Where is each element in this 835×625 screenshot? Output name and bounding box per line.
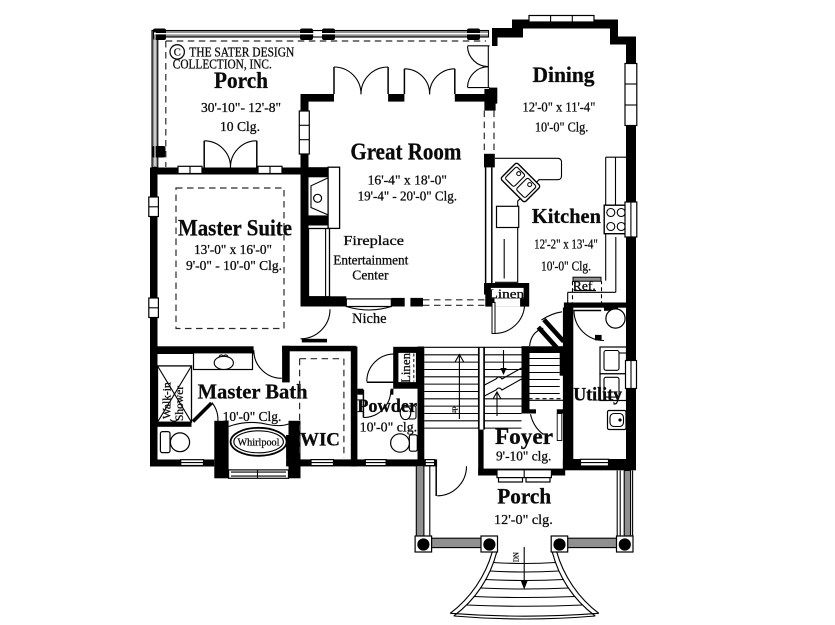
svg-text:Utility: Utility [573,386,623,406]
svg-text:9'-10" clg.: 9'-10" clg. [496,449,551,464]
svg-text:Shower: Shower [174,386,186,421]
svg-text:12'-2" x 13'-4": 12'-2" x 13'-4" [534,236,598,251]
svg-text:19'-4" - 20'-0" Clg.: 19'-4" - 20'-0" Clg. [358,189,457,204]
svg-text:12'-0" clg.: 12'-0" clg. [494,513,553,528]
svg-text:Powder: Powder [357,396,418,417]
svg-text:WIC: WIC [300,430,340,451]
svg-text:up: up [449,406,458,414]
svg-text:Niche: Niche [352,311,387,327]
svg-text:Kitchen: Kitchen [532,204,601,228]
svg-text:Master Suite: Master Suite [178,215,292,240]
svg-text:10 Clg.: 10 Clg. [220,119,260,134]
svg-text:Master Bath: Master Bath [198,379,308,403]
svg-text:10'-0" clg.: 10'-0" clg. [360,420,418,435]
svg-text:12'-0" x 11'-4": 12'-0" x 11'-4" [522,100,595,115]
svg-text:Linen: Linen [398,353,413,383]
svg-text:16'-4" x 18'-0": 16'-4" x 18'-0" [368,172,447,187]
svg-text:Great Room: Great Room [350,139,461,165]
svg-text:Fireplace: Fireplace [343,234,404,249]
svg-text:30'-10"- 12'-8": 30'-10"- 12'-8" [201,100,281,115]
svg-text:Porch: Porch [214,68,268,93]
svg-text:Center: Center [352,269,389,284]
svg-text:13'-0" x 16'-0": 13'-0" x 16'-0" [194,242,272,257]
svg-text:10'-0" Clg.: 10'-0" Clg. [535,119,589,134]
svg-text:10'-0" Clg.: 10'-0" Clg. [541,258,591,273]
svg-text:Porch: Porch [497,484,551,509]
svg-text:Foyer: Foyer [495,424,553,449]
svg-text:Walk-in: Walk-in [162,382,174,419]
svg-text:10'-0" Clg.: 10'-0" Clg. [223,409,282,424]
svg-text:9'-0" - 10'-0" Clg.: 9'-0" - 10'-0" Clg. [186,258,282,273]
svg-text:Entertainment: Entertainment [333,254,408,269]
svg-text:Dining: Dining [533,62,596,87]
svg-text:DN: DN [514,552,521,562]
svg-text:Whirlpool: Whirlpool [238,437,280,449]
